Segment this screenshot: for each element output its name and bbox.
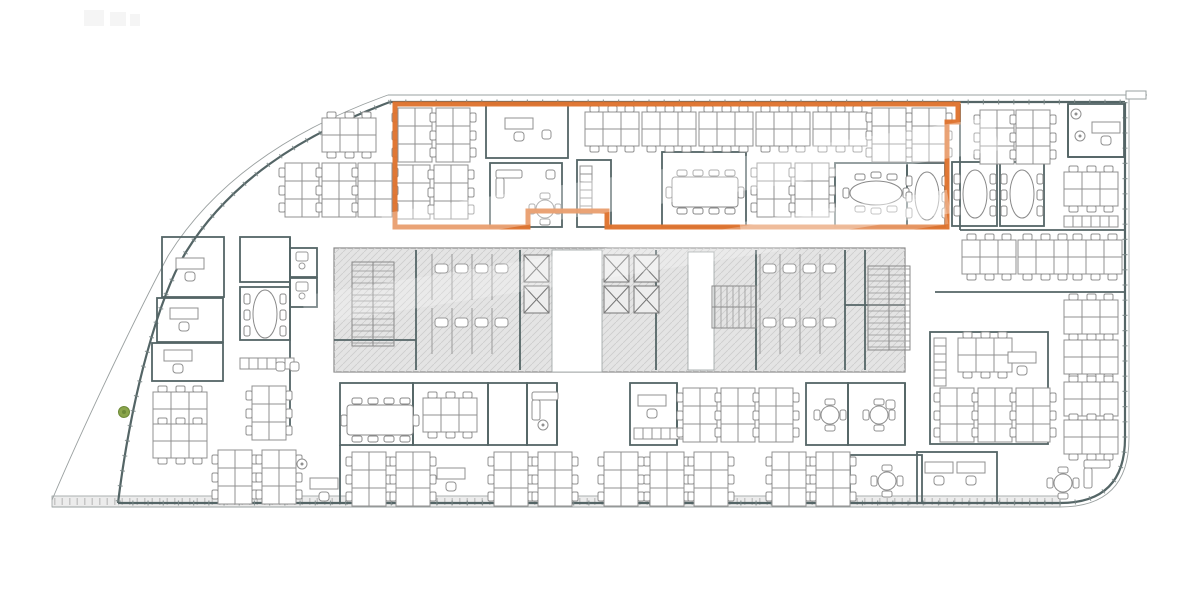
furniture-deskH: [1018, 234, 1072, 280]
furniture-deskV: [532, 452, 578, 506]
furniture-deskH: [1064, 334, 1118, 380]
furniture-plantGray: [538, 420, 548, 430]
furniture-deskH: [423, 392, 477, 438]
furniture-office: [925, 462, 953, 485]
furniture-round4: [1047, 467, 1079, 499]
room: [917, 452, 997, 503]
furniture-meet10: [341, 398, 419, 442]
room: [152, 343, 223, 381]
furniture-office: [1092, 122, 1120, 145]
furniture-plantGreen: [119, 407, 130, 418]
furniture-round4: [814, 399, 846, 431]
furniture-deskH: [1064, 166, 1118, 212]
furniture-deskV: [688, 452, 734, 506]
furniture-elev: [604, 286, 629, 313]
furniture-deskV: [1010, 110, 1056, 164]
furniture-cabV: [934, 338, 946, 386]
furniture-ovalV: [244, 290, 286, 338]
furniture-round4: [871, 465, 903, 497]
furniture-office: [437, 468, 465, 491]
furniture-deskV: [1010, 388, 1056, 442]
furniture-deskH: [756, 106, 810, 152]
furniture-plantGray: [297, 459, 307, 469]
furniture-deskV: [246, 386, 292, 440]
furniture-plantGray: [1075, 131, 1085, 141]
furniture-deskV: [430, 108, 476, 162]
furniture-deskH: [958, 332, 1012, 378]
furniture-stairV: [868, 266, 910, 350]
furniture-office: [957, 462, 985, 485]
furniture-ovalV: [954, 170, 996, 218]
furniture-office: [505, 118, 533, 141]
facade-tab: [1126, 91, 1146, 99]
furniture-office: [170, 308, 198, 331]
furniture-chair: [886, 400, 895, 409]
furniture-ovalV: [1001, 170, 1043, 218]
furniture-deskH: [1068, 234, 1122, 280]
room: [157, 298, 223, 342]
furniture-cabH: [240, 358, 294, 369]
furniture-sofa: [532, 392, 558, 420]
furniture-plantGray: [1071, 109, 1081, 119]
furniture-stairH: [712, 286, 756, 328]
room: [486, 104, 568, 158]
furniture-deskV: [346, 452, 392, 506]
furniture-deskV: [644, 452, 690, 506]
furniture-chair: [542, 130, 551, 139]
furniture-elev: [634, 286, 659, 313]
furniture-deskV: [766, 452, 812, 506]
furniture-sofa: [1084, 460, 1110, 488]
furniture-deskV: [488, 452, 534, 506]
furniture-deskV: [256, 450, 302, 504]
smudges: [84, 10, 140, 26]
furniture-deskH: [1064, 414, 1118, 460]
furniture-deskV: [753, 388, 799, 442]
core-lobby-strip: [688, 252, 714, 370]
floor-plan-image: [0, 0, 1200, 600]
smudge: [130, 14, 140, 26]
furniture-chair: [290, 362, 299, 371]
furniture-deskV: [212, 450, 258, 504]
furniture-chair: [276, 362, 285, 371]
furniture-cabH: [1064, 216, 1118, 227]
furniture-deskH: [699, 106, 753, 152]
furniture-deskH: [322, 112, 376, 158]
furniture-deskH: [962, 234, 1016, 280]
furniture-deskH: [642, 106, 696, 152]
furniture-deskV: [352, 163, 398, 217]
furniture-chair: [546, 170, 555, 179]
smudge: [110, 12, 126, 26]
furniture-deskH: [153, 418, 207, 464]
smudge: [84, 10, 104, 26]
floor-plan-svg: [0, 0, 1200, 600]
furniture-deskV: [810, 452, 856, 506]
furniture-office: [176, 258, 204, 281]
furniture-deskV: [390, 452, 436, 506]
furniture-deskV: [598, 452, 644, 506]
room: [488, 383, 527, 445]
furniture-deskH: [585, 106, 639, 152]
room: [240, 237, 290, 282]
furniture-deskH: [1064, 294, 1118, 340]
furniture-wc: [296, 252, 308, 269]
furniture-office: [638, 395, 666, 418]
furniture-office: [164, 350, 192, 373]
